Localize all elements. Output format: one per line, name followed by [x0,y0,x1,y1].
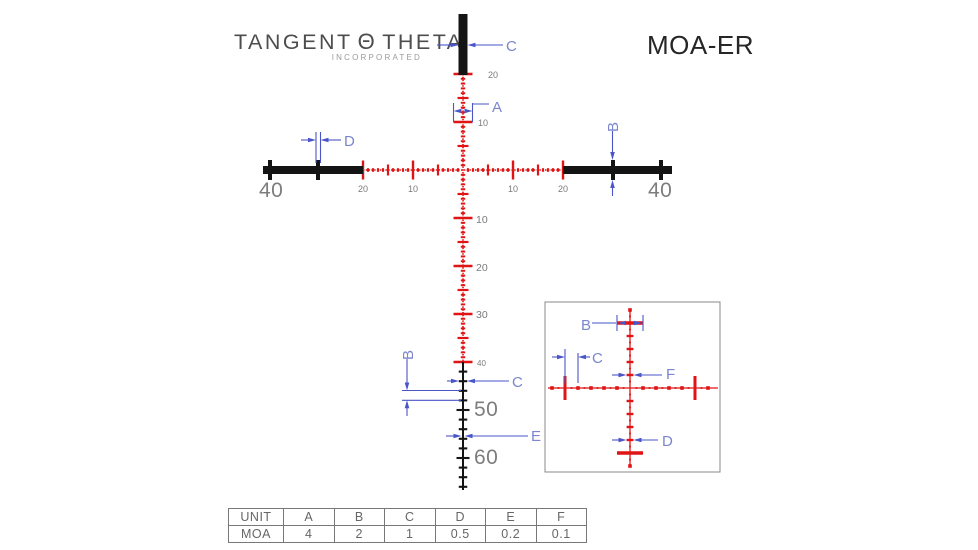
callout-letter-b-lower: B [400,350,417,360]
callout-letter-b-inset: B [581,317,591,334]
table-row-label: MOA [229,526,284,543]
table-header-cell: A [284,509,335,526]
callout-letter-d-post: D [344,133,355,150]
reticle-diagram: 20 10 10 20 30 40 20 10 10 20 40 40 50 6… [0,0,978,550]
axis-label-down-30: 30 [476,309,488,321]
inset-detail-view [545,302,720,472]
table-header-cell: UNIT [229,509,284,526]
axis-label-down-20: 20 [476,262,488,274]
callout-letter-c-inset: C [592,350,603,367]
callout-letter-c-top: C [506,38,517,55]
callout-letter-a: A [492,99,502,116]
table-value-cell: 0.2 [486,526,537,543]
elevation-label-60: 60 [474,446,498,469]
dimension-callouts [301,43,662,443]
callout-letter-f-inset: F [666,366,675,383]
unit-table-value-row: MOA 4 2 1 0.5 0.2 0.1 [229,526,587,543]
table-header-cell: B [334,509,385,526]
table-header-cell: E [486,509,537,526]
table-value-cell: 4 [284,526,335,543]
table-value-cell: 2 [334,526,385,543]
table-value-cell: 0.5 [435,526,486,543]
callout-letter-e: E [531,428,541,445]
elevation-label-50: 50 [474,398,498,421]
callout-letter-c-lower: C [512,374,523,391]
table-header-cell: C [385,509,436,526]
unit-table-header-row: UNIT A B C D E F [229,509,587,526]
axis-label-up-20: 20 [488,70,498,80]
axis-label-down-40: 40 [477,359,486,368]
reticle-black-posts [263,14,672,490]
post-label-left-40: 40 [259,179,283,202]
reticle-red-marks [363,74,563,362]
axis-label-left-20: 20 [358,184,368,194]
table-header-cell: F [536,509,587,526]
axis-label-down-10: 10 [476,214,488,226]
table-header-cell: D [435,509,486,526]
table-value-cell: 0.1 [536,526,587,543]
axis-label-up-10: 10 [478,118,488,128]
callout-letter-d-inset: D [662,433,673,450]
table-value-cell: 1 [385,526,436,543]
post-label-right-40: 40 [648,179,672,202]
unit-table: UNIT A B C D E F MOA 4 2 1 0.5 0.2 0.1 [228,508,587,543]
callout-letter-b-post: B [605,122,622,132]
axis-label-left-10: 10 [408,184,418,194]
axis-label-right-20: 20 [558,184,568,194]
axis-label-right-10: 10 [508,184,518,194]
